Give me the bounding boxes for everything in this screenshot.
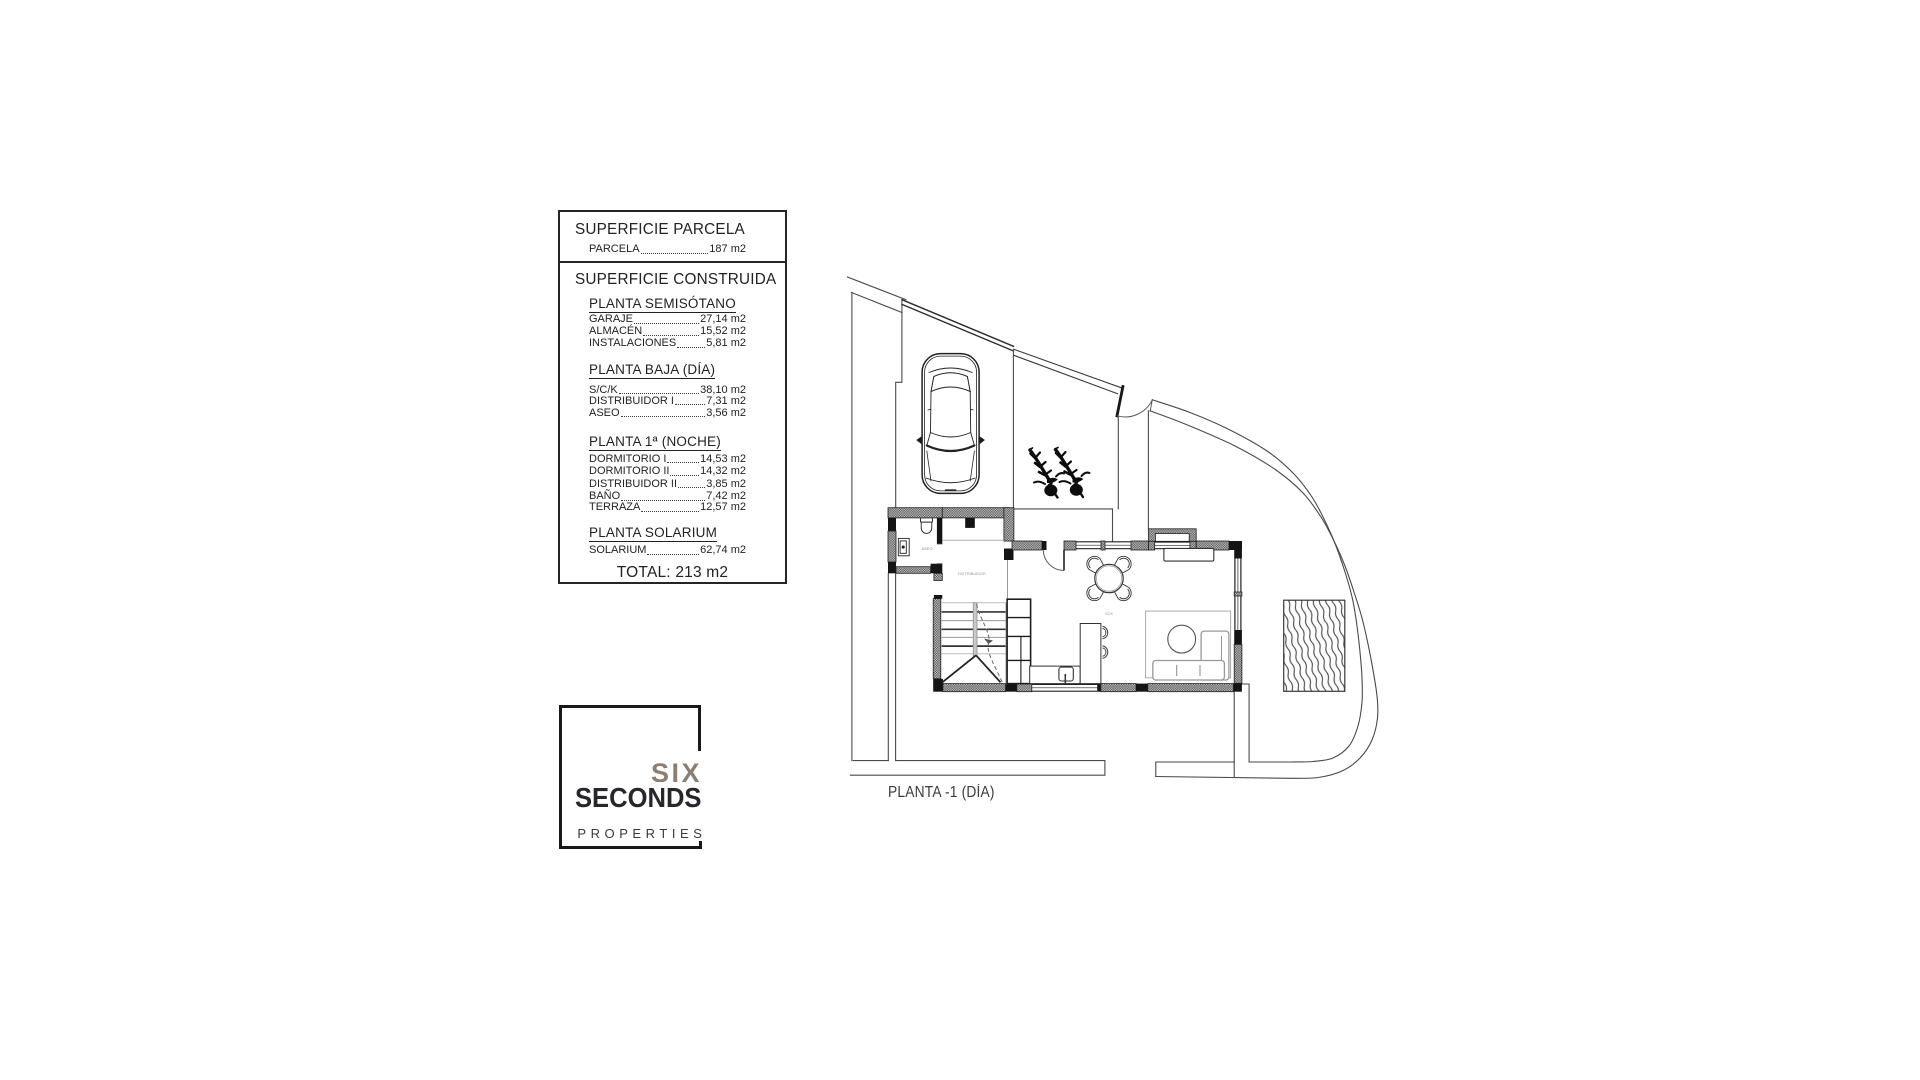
- svg-text:SCK: SCK: [1105, 611, 1114, 616]
- svg-text:ASEO: ASEO: [922, 546, 933, 551]
- svg-text:DISTRIBUIDOR: DISTRIBUIDOR: [958, 571, 986, 576]
